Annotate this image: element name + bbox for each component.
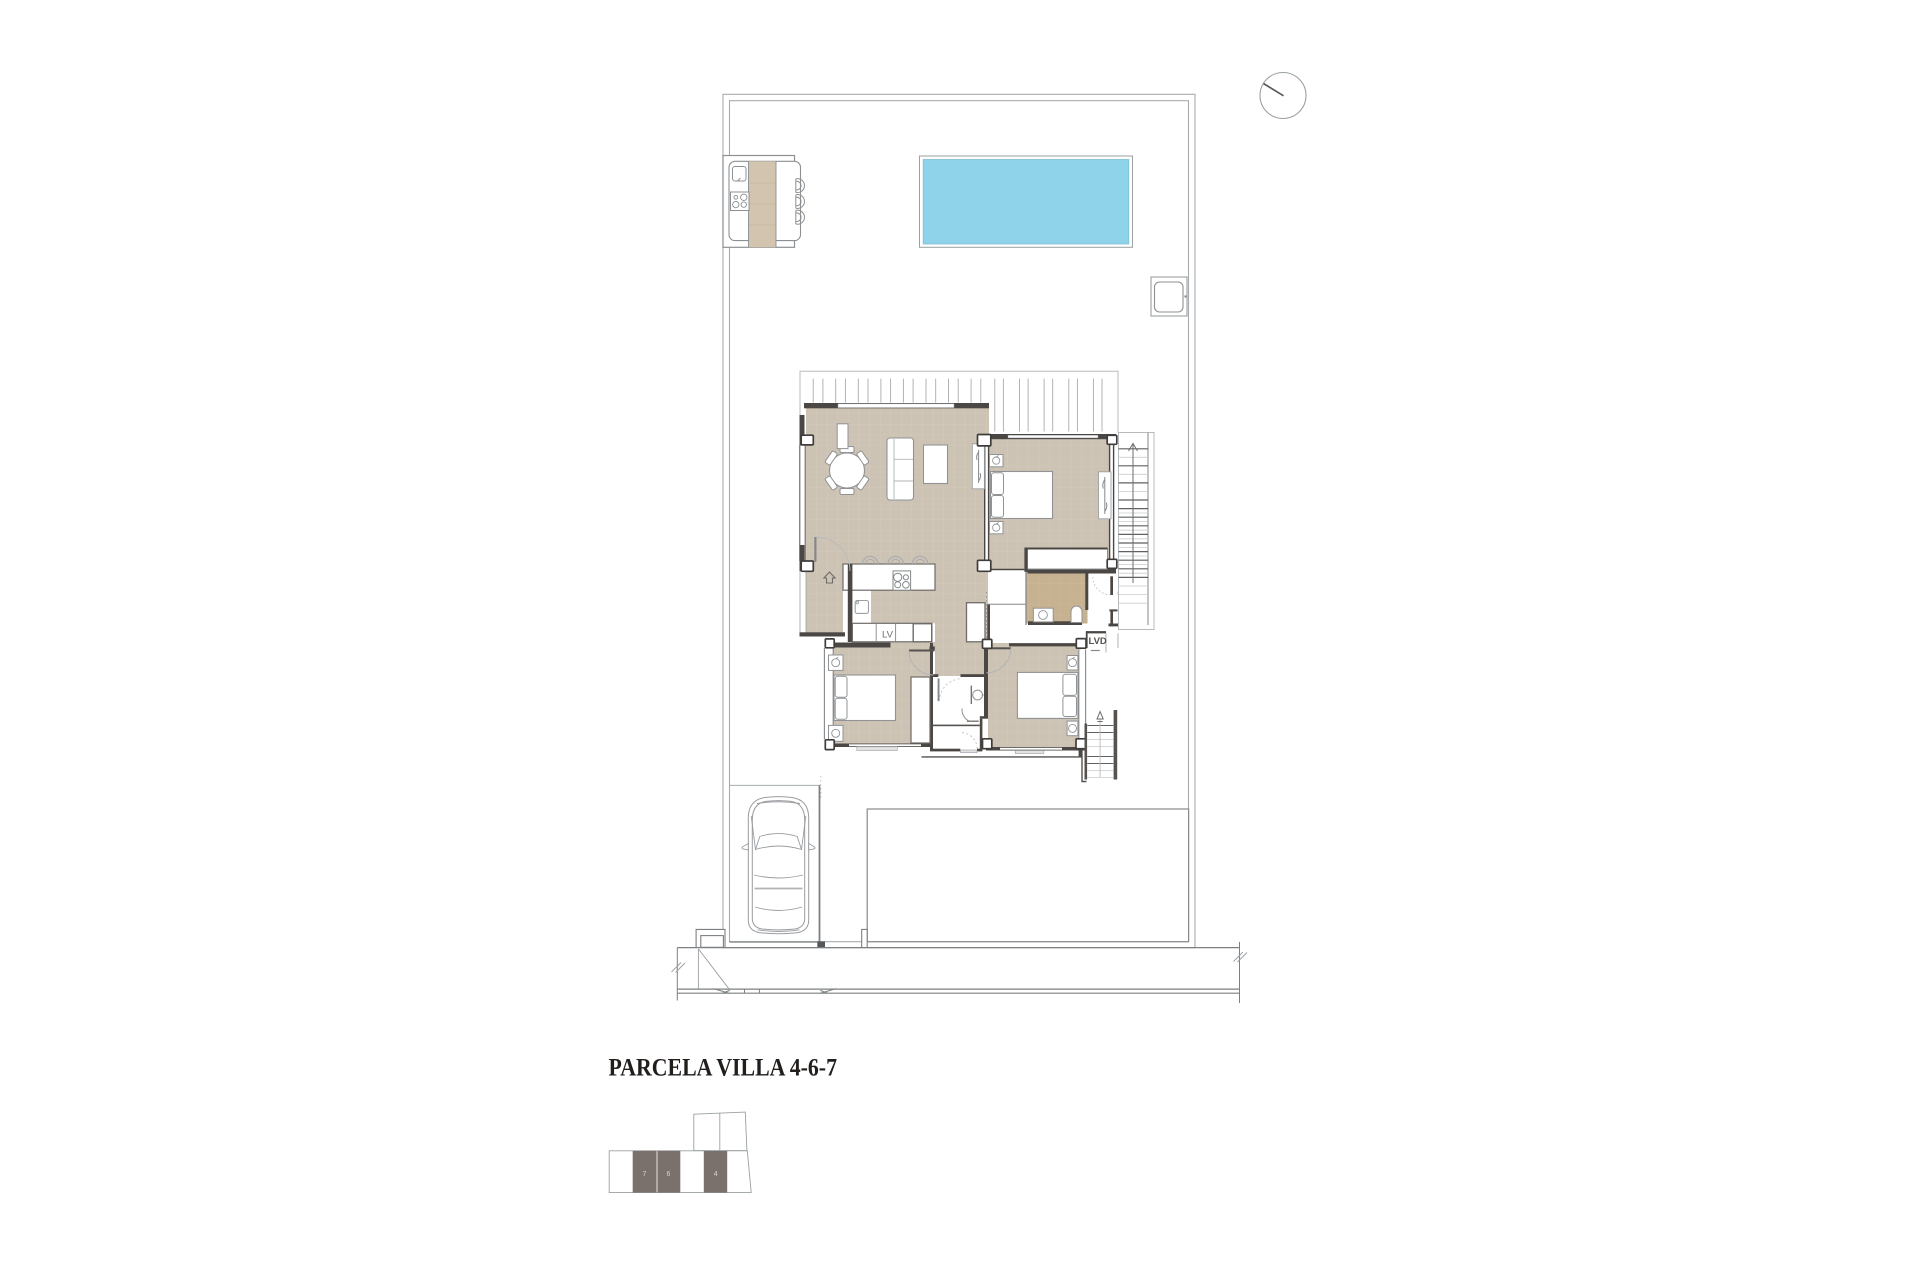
svg-text:7: 7 <box>643 1171 647 1178</box>
svg-text:6: 6 <box>667 1171 671 1178</box>
svg-text:LVD: LVD <box>1089 636 1107 647</box>
svg-text:4: 4 <box>714 1171 718 1178</box>
svg-text:LV: LV <box>882 630 894 641</box>
svg-text:PARCELA VILLA 4-6-7: PARCELA VILLA 4-6-7 <box>609 1053 838 1082</box>
